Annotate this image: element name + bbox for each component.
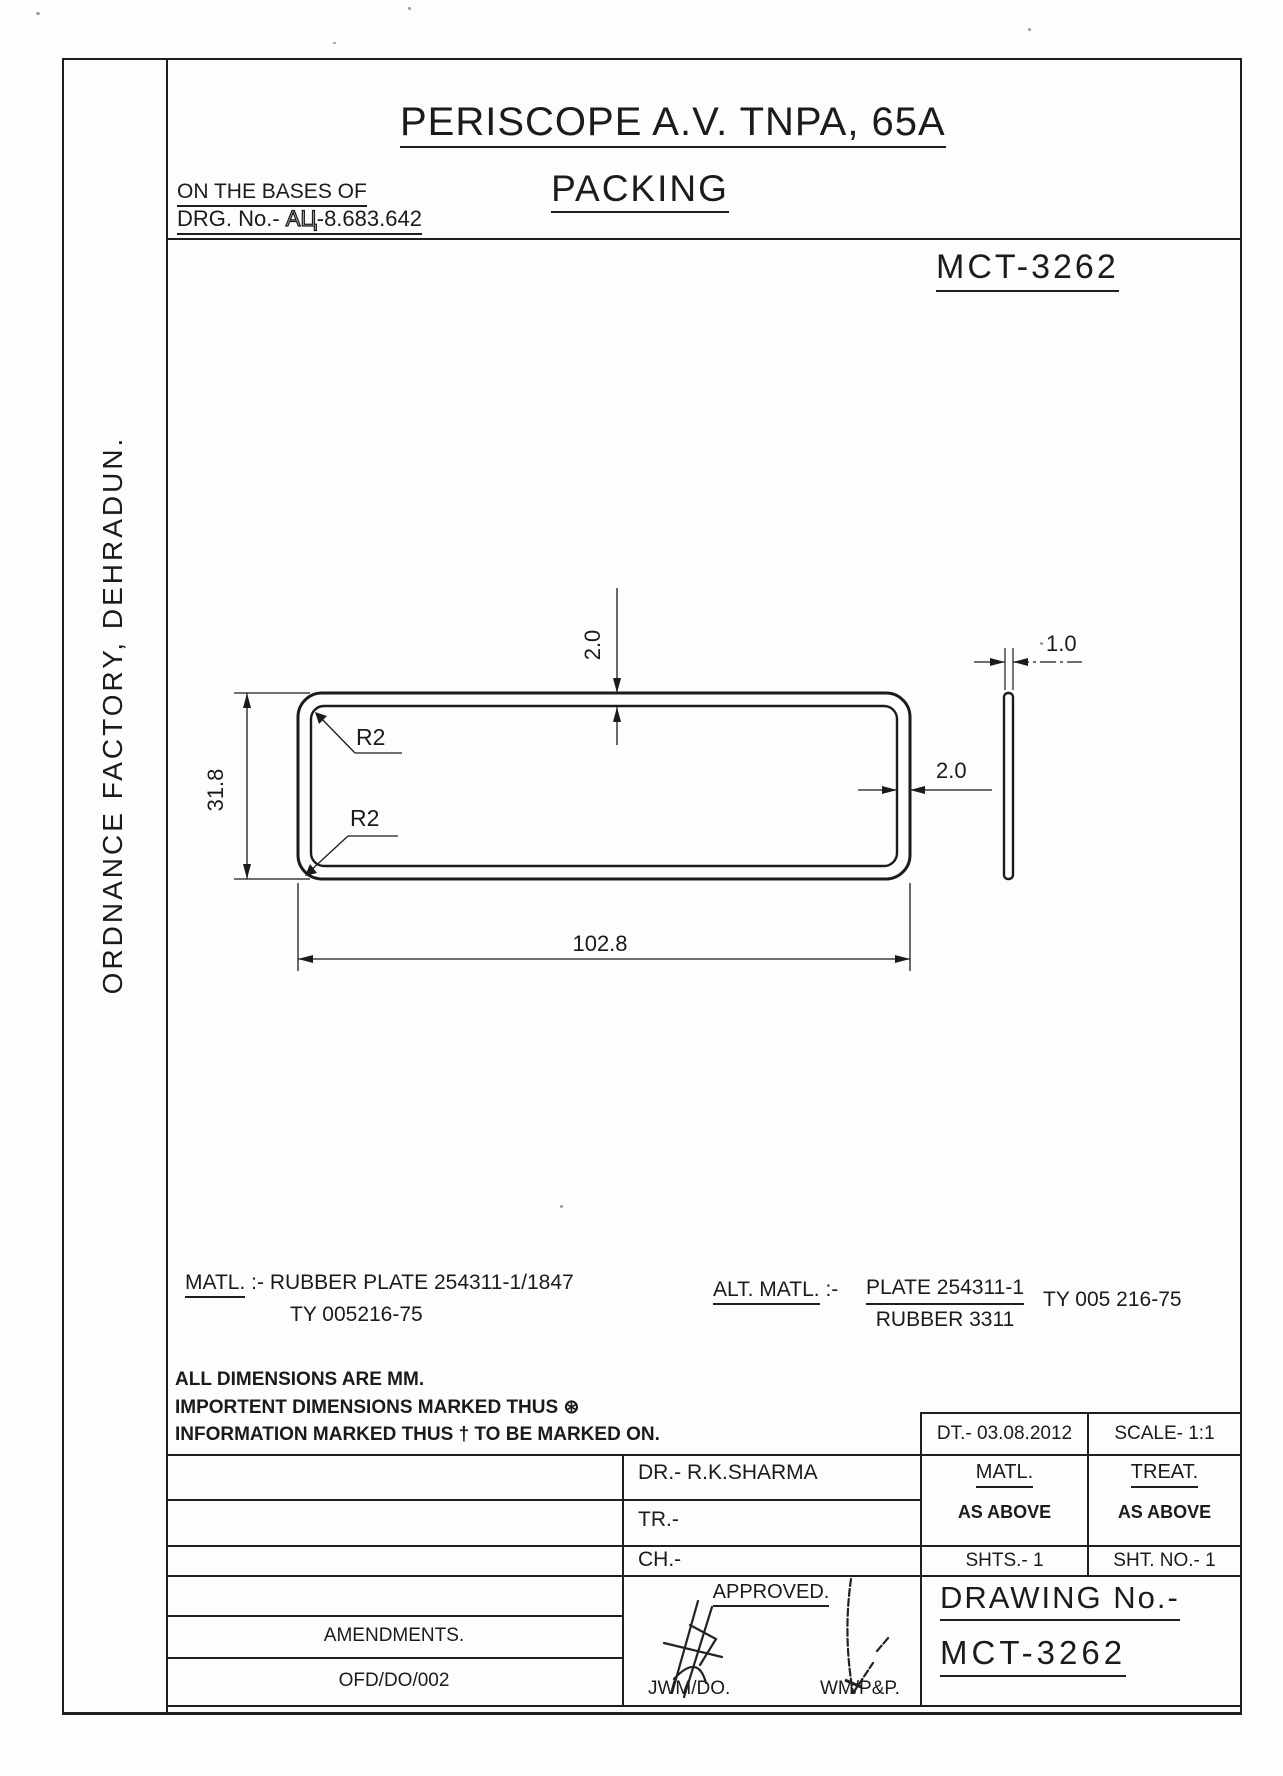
material-label: MATL. [185,1271,245,1298]
tb-line-table-bottom [166,1705,1240,1707]
dim-height: 31.8 [203,769,228,812]
scan-speck [1028,28,1031,31]
alt-material-bottom: RUBBER 3311 [866,1305,1024,1332]
header-separator-line [166,238,1240,240]
border-right [1240,58,1242,1715]
tb-line-row4 [166,1575,1240,1577]
dim-radius-bottom: R2 [350,805,379,831]
material-value: RUBBER PLATE 254311-1/1847 [270,1271,574,1294]
dim-radius-top: R2 [356,724,385,750]
sheet-subtitle-text: PACKING [551,168,729,213]
drg-prefix: DRG. No.- [177,206,286,231]
note-information-marked: INFORMATION MARKED THUS † TO BE MARKED O… [175,1424,660,1446]
part-drawing: 31.8 102.8 2.0 2.0 R2 R2 [170,545,1130,995]
tb-line-table-top [166,1454,1240,1456]
basis-label: ON THE BASES OF [177,180,367,204]
tb-sheets: SHTS.- 1 [922,1546,1087,1575]
sheet-title: PERISCOPE A.V. TNPA, 65A [400,100,900,145]
scan-speck [560,1205,563,1208]
dim-wall-right: 2.0 [936,758,967,783]
tb-amendment-no: OFD/DO/002 [166,1659,622,1703]
tb-treat-header: TREAT. [1089,1460,1240,1488]
scan-speck [408,7,411,10]
note-dimensions-mm: ALL DIMENSIONS ARE MM. [175,1369,424,1391]
tb-drawn-by: DR.- R.K.SHARMA [638,1461,818,1485]
alt-material-label: ALT. MATL. [713,1278,820,1305]
tb-date: DT.- 03.08.2012 [922,1414,1087,1454]
drg-code-cyrillic: АЦ [286,206,317,231]
packing-outline-inner [311,706,897,866]
tb-treat-value: AS ABOVE [1089,1500,1240,1524]
doc-number-top: MCT-3262 [936,248,1119,287]
tb-drawing-no-label: DRAWING No.- [940,1580,1180,1616]
dim-width: 102.8 [572,931,627,956]
alt-material-spec: TY 005 216-75 [1043,1288,1182,1312]
border-top [62,58,1242,60]
scan-speck [333,42,336,44]
tb-line-row2 [166,1499,922,1501]
tb-traced-by: TR.- [638,1508,679,1532]
material-sep: :- [251,1271,264,1294]
signature-scribble-1 [650,1595,760,1700]
sheet-title-text: PERISCOPE A.V. TNPA, 65A [400,100,946,148]
signature-scribble-2 [815,1575,895,1700]
border-left-inner [166,58,168,1715]
drawing-sheet: ORDNANCE FACTORY, DEHRADUN. PERISCOPE A.… [0,0,1283,1776]
tb-sheet-no: SHT. NO.- 1 [1089,1546,1240,1575]
factory-name: ORDNANCE FACTORY, DEHRADUN. [97,436,129,995]
tb-amendments-label: AMENDMENTS. [166,1617,622,1655]
side-view-strip [1004,693,1013,879]
drg-code-rest: -8.683.642 [317,206,422,231]
packing-outline-outer [298,693,910,879]
material-spec: TY 005216-75 [290,1303,423,1327]
dim-thickness: 1.0 [1046,631,1077,656]
alt-material-sep: :- [825,1278,838,1301]
tb-drawing-no: MCT-3262 [940,1634,1126,1672]
tb-matl-header: MATL. [922,1460,1087,1488]
note-important-dims: IMPORTENT DIMENSIONS MARKED THUS ⊛ [175,1396,579,1419]
border-bottom [62,1712,1242,1715]
material-line: MATL. :- RUBBER PLATE 254311-1/1847 [185,1271,574,1295]
dim-wall-top: 2.0 [580,630,605,661]
tb-scale: SCALE- 1:1 [1089,1414,1240,1454]
scan-speck [36,12,40,15]
tb-checked-by: CH.- [638,1548,681,1572]
alt-material-fraction: PLATE 254311-1 RUBBER 3311 [866,1276,1024,1332]
alt-material-top: PLATE 254311-1 [866,1276,1024,1305]
border-left-outer [62,58,64,1715]
tb-matl-value: AS ABOVE [922,1500,1087,1524]
alt-material-line: ALT. MATL. :- [713,1278,838,1302]
sheet-subtitle: PACKING [520,168,760,210]
basis-drg-number: DRG. No.- АЦ-8.683.642 [177,206,422,232]
